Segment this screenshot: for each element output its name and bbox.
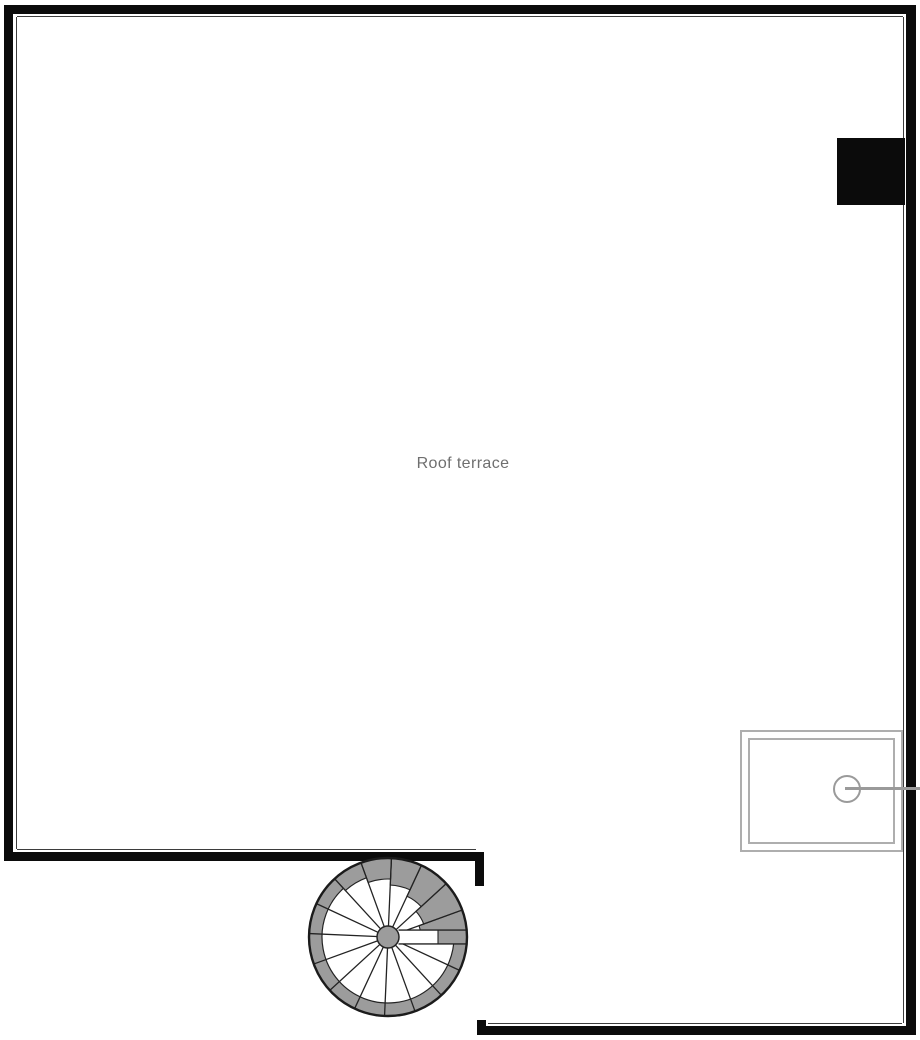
inner-line-bottom-outer [488,1023,902,1024]
wall-bottom-outer [477,1026,916,1035]
wall-stub-by-staircase [475,852,484,886]
roof-window-handle-circle [833,775,861,803]
roof-window-inner-frame [748,738,895,844]
spiral-staircase-icon [303,852,473,1022]
inner-line-left [16,17,17,849]
room-label: Roof terrace [417,455,510,473]
roof-window [740,730,903,852]
wall-right [906,5,916,1035]
wall-left [4,5,13,861]
wall-top [4,5,916,14]
wall-stub-bottom-left [477,1020,486,1035]
inner-line-terrace-bottom [17,849,476,850]
inner-line-top [17,16,903,17]
roof-terrace-floor-plan: Roof terrace [0,0,920,1040]
chimney-flue-block [837,138,905,205]
